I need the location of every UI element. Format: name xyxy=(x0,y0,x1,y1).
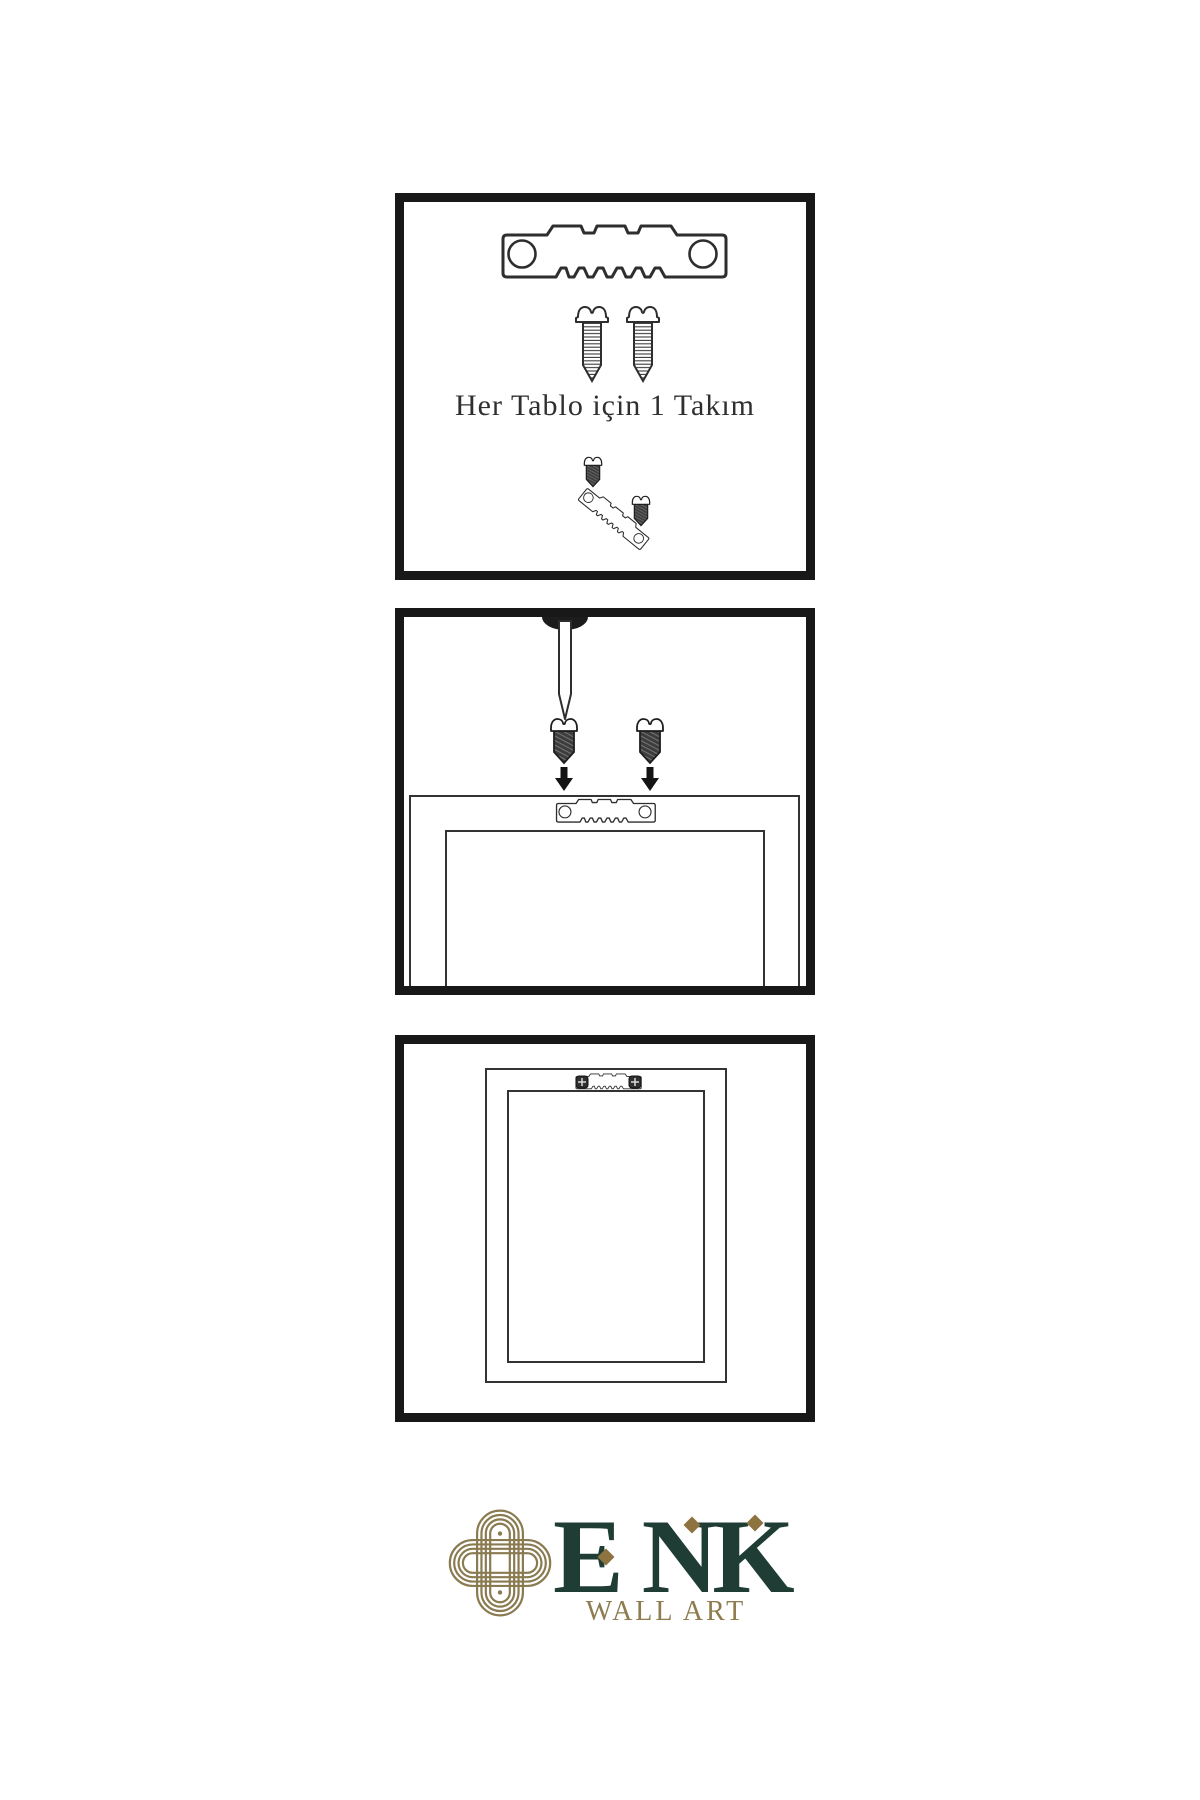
dark-screw-icon xyxy=(631,494,651,528)
screw-head-icon xyxy=(628,1075,642,1089)
sawtooth-hanger-icon xyxy=(553,798,657,824)
nail-icon xyxy=(555,620,575,722)
brand-tagline: WALL ART xyxy=(553,1596,779,1628)
frame-back-inner xyxy=(507,1090,705,1363)
diamond-accent-icon xyxy=(747,1515,764,1532)
step-panel-attach-hanger xyxy=(395,608,815,995)
step-panel-hardware-kit: Her Tablo için 1 Takım xyxy=(395,193,815,580)
dark-screw-icon xyxy=(635,717,665,765)
dark-screw-icon xyxy=(583,454,603,490)
diamond-accent-icon xyxy=(684,1517,701,1534)
kit-caption: Her Tablo için 1 Takım xyxy=(404,388,806,424)
brand-letter: N xyxy=(642,1504,719,1610)
tilted-sawtooth-hanger-icon xyxy=(578,452,688,572)
step-panel-frame-mounted xyxy=(395,1035,815,1422)
instruction-sheet: Her Tablo için 1 Takım xyxy=(0,0,1200,1800)
screw-head-icon xyxy=(575,1075,589,1089)
sawtooth-hanger-icon xyxy=(495,223,730,281)
dark-screw-icon xyxy=(549,717,579,765)
arrow-down-icon xyxy=(554,767,574,791)
arrow-down-icon xyxy=(640,767,660,791)
brand-name: ENK xyxy=(553,1504,795,1614)
brand-letter: E xyxy=(553,1504,624,1610)
knot-logo-icon xyxy=(445,1503,555,1623)
screw-icon xyxy=(575,305,609,383)
diamond-accent-icon xyxy=(598,1549,615,1566)
brand-letter: K xyxy=(712,1504,794,1610)
frame-back-inner xyxy=(445,830,765,995)
screw-icon xyxy=(626,305,660,383)
